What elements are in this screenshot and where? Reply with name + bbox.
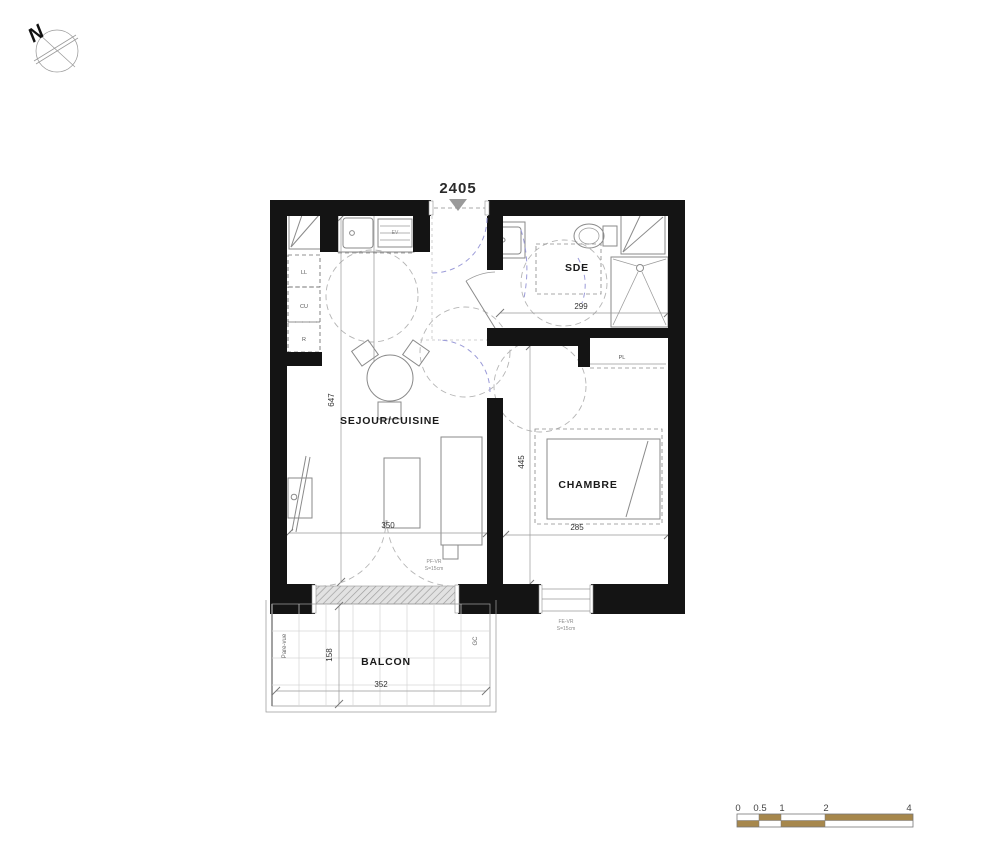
shower-line	[613, 259, 637, 266]
scale-segment-tan	[737, 821, 759, 828]
placard-label: PL	[619, 355, 626, 361]
chambre-window: FE-VR S=15cm	[539, 584, 593, 632]
radiator-panel	[292, 456, 306, 531]
balcony-door-leaf-swing	[320, 520, 386, 586]
wall-top-right	[488, 200, 685, 216]
balcony-door-type: PF-VR	[427, 559, 442, 565]
wall-left	[270, 200, 287, 612]
kitchen-area: EV LL CU R	[288, 213, 414, 352]
sde-door-swing	[466, 272, 495, 281]
wall-sde-chambre	[487, 328, 580, 346]
entrance-jamb	[429, 201, 433, 215]
balcony-door-size: S=15cm	[425, 566, 443, 572]
apartment-number-group: 2405	[439, 180, 476, 211]
balcon-dim-depth: 158	[325, 648, 334, 662]
sde-dim-width: 299	[574, 302, 588, 311]
placard: PL	[590, 355, 666, 368]
radiator-knob	[291, 494, 297, 500]
sde-door-leaf	[466, 281, 495, 328]
dining-table	[367, 355, 413, 401]
shower-line	[642, 272, 666, 325]
bed-blanket-fold	[626, 441, 648, 517]
entrance-jamb	[485, 201, 489, 215]
scale-segment-tan	[781, 821, 825, 828]
wall-right	[668, 200, 685, 614]
wall-kitchen-nook	[287, 352, 322, 366]
chambre-dim-width: 285	[570, 523, 584, 532]
appliance-label-cu: CU	[300, 304, 308, 310]
scale-label-2: 2	[823, 803, 828, 814]
sink-faucet	[350, 231, 355, 236]
wall-sejour-chambre	[487, 398, 503, 584]
shower-tray	[611, 257, 668, 327]
duct-left-line	[291, 215, 319, 247]
sde-label: SDE	[565, 262, 589, 274]
shower-line	[643, 259, 666, 266]
scale-label-1: 1	[779, 803, 784, 814]
chambre-door-swing	[438, 340, 490, 392]
balcon-label: BALCON	[361, 656, 411, 668]
window-jamb	[539, 585, 542, 613]
scale-label-4: 4	[906, 803, 911, 814]
sejour-label: SEJOUR/CUISINE	[340, 415, 440, 427]
chambre-window-size: S=15cm	[557, 626, 575, 632]
dimension-lines	[285, 214, 672, 588]
turning-circle-hall	[420, 307, 510, 397]
scale-label-05: 0.5	[753, 803, 766, 814]
openings	[429, 201, 585, 392]
wall-bottom-c	[591, 584, 685, 614]
kitchen-sink	[343, 218, 373, 248]
toilet-tank	[603, 226, 617, 246]
sde-door-swing-blue	[521, 230, 527, 298]
furniture-rect-small	[443, 545, 458, 559]
wall-bottom-b	[458, 584, 541, 614]
furniture-rect	[384, 458, 420, 528]
wall-kitchen-stub-a	[320, 216, 338, 252]
balcony-door-jamb	[312, 585, 316, 613]
duct-right-line	[623, 216, 640, 252]
wall-entry-sde	[487, 216, 503, 270]
entrance-marker-triangle	[449, 199, 467, 211]
shower-line	[613, 272, 638, 325]
radiator-panel	[296, 457, 310, 532]
chambre-window-type: FE-VR	[559, 619, 574, 625]
balcony-door-sill-hatch	[315, 586, 456, 604]
floorplan-page: N 2405 EV LL CU R	[0, 0, 1000, 857]
shower-drain	[637, 265, 644, 272]
toilet-bowl-inner	[579, 228, 599, 244]
scale-segment-tan	[825, 814, 913, 821]
gc-label: GC	[473, 636, 479, 646]
north-arrow: N	[24, 21, 78, 72]
entrance-door-swing	[432, 218, 487, 273]
scale-bar: 0 0.5 1 2 4	[735, 803, 913, 827]
chambre-label: CHAMBRE	[558, 479, 617, 491]
furniture-rect	[441, 437, 482, 545]
appliance-label-r: R	[302, 337, 306, 343]
chambre-dim-height: 445	[517, 455, 526, 469]
duct-right-line	[623, 217, 663, 252]
balcony-door: PF-VR S=15cm	[312, 520, 459, 613]
bed-clearance-dashed	[535, 429, 662, 524]
appliance-label-ll: LL	[301, 270, 307, 276]
wall-top-left	[270, 200, 431, 216]
turning-circle-chambre	[494, 340, 586, 432]
window-jamb	[590, 585, 593, 613]
scale-label-0: 0	[735, 803, 740, 814]
wall-bottom-a	[270, 584, 315, 614]
floorplan-canvas: N 2405 EV LL CU R	[0, 0, 1000, 857]
apartment-number: 2405	[439, 180, 476, 197]
wall-placard-thin	[580, 328, 668, 338]
duct-left-line	[291, 215, 302, 247]
balcon-dim-width: 352	[374, 680, 388, 689]
scale-segment-tan	[759, 814, 781, 821]
balcony-door-jamb	[455, 585, 459, 613]
sejour-dim-width: 350	[381, 521, 395, 530]
chambre-furniture	[535, 429, 662, 524]
wall-kitchen-stub-b	[413, 216, 430, 252]
turning-circle-kitchen	[326, 250, 418, 342]
pare-vue-label: Pare-vue	[282, 633, 288, 658]
sink-label: EV	[392, 230, 399, 236]
sejour-dim-height: 647	[327, 393, 336, 407]
